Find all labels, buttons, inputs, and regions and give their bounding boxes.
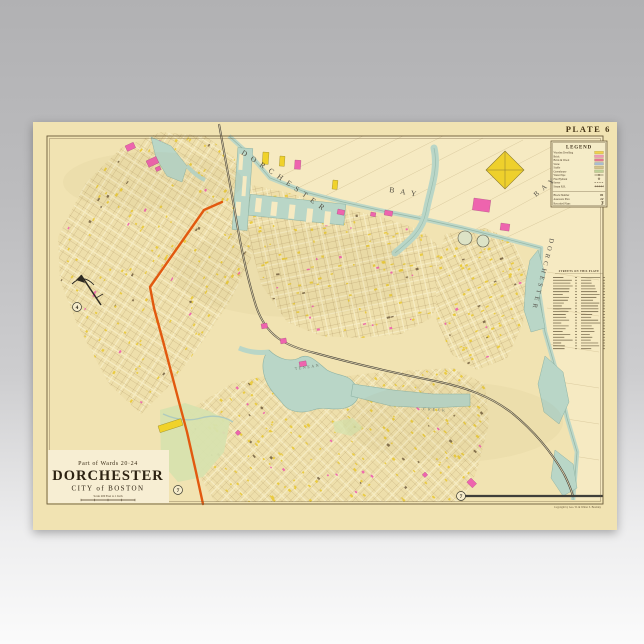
legend-row-label: Stable xyxy=(554,167,562,170)
legend-title: LEGEND xyxy=(566,146,592,151)
legend-box: LEGENDWooden DwellingBrickBrick & WoodSt… xyxy=(551,141,607,207)
plate-ref-south-left-number: 7 xyxy=(177,488,180,494)
title-main: DORCHESTER xyxy=(52,468,164,484)
legend-row-label: Wooden Dwelling xyxy=(554,152,574,155)
legend-footer-label: Block Number xyxy=(554,194,570,197)
plate-ref-west: 4 xyxy=(73,303,82,312)
legend-row-label: Greenhouse xyxy=(554,170,568,173)
title-city-line: CITY of BOSTON xyxy=(72,485,145,493)
plate-number: PLATE 6 xyxy=(566,124,611,134)
copyright-line: Copyright by Geo. W. & Walter S. Bromley xyxy=(554,506,602,509)
legend-row-label: Brick xyxy=(554,155,561,158)
title-scale-line: Scale 200 Feet to 1 Inch xyxy=(93,494,123,498)
legend-row-label: Steam R.R. xyxy=(554,185,567,188)
street-index-header: STREETS ON THIS PLATE xyxy=(559,270,600,273)
paper-aging xyxy=(63,152,243,212)
plate-ref-west-number: 4 xyxy=(76,305,79,311)
plate-ref-south-left: 7 xyxy=(174,486,183,495)
plate-ref-south-right-number: 7 xyxy=(460,494,463,500)
legend-footer-label: Assessors Plan xyxy=(554,198,571,201)
paper-aging xyxy=(173,227,413,317)
paper-aging xyxy=(343,382,563,462)
legend-footer-value: 3 xyxy=(600,201,604,206)
map-poster: LEGENDWooden DwellingBrickBrick & WoodSt… xyxy=(33,122,617,530)
dorchester-map: LEGENDWooden DwellingBrickBrick & WoodSt… xyxy=(33,122,617,530)
page-background: LEGENDWooden DwellingBrickBrick & WoodSt… xyxy=(0,0,644,644)
plate-ref-south-right: 7 xyxy=(457,492,466,501)
title-wards-line: Part of Wards 20·24 xyxy=(78,460,138,467)
legend-row-label: Brick & Wood xyxy=(554,159,570,162)
legend-footer-label: Recorded Plans xyxy=(554,202,571,205)
legend-row-label: Stone xyxy=(554,163,561,166)
